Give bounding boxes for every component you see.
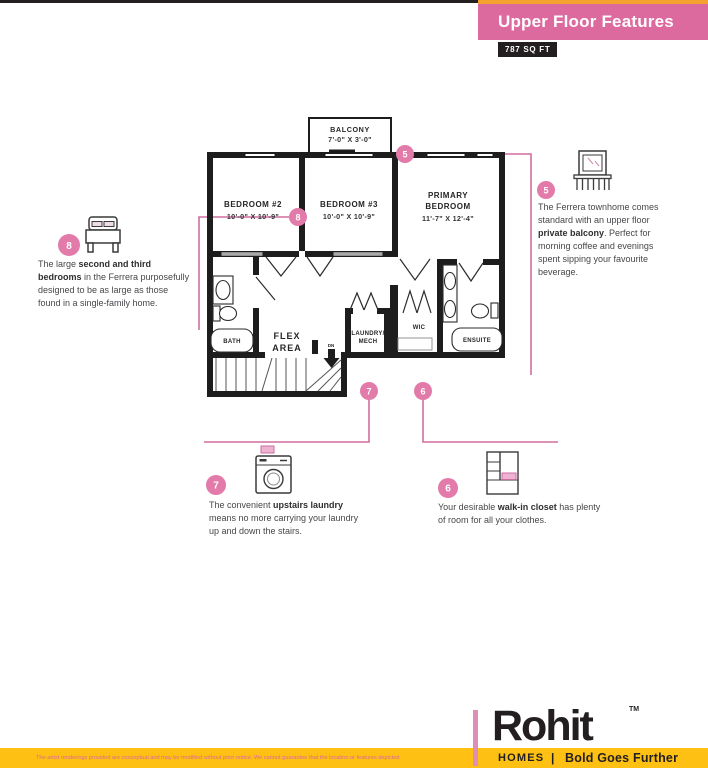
toilet-tank — [491, 303, 498, 318]
ensuite-label: ENSUITE — [463, 338, 491, 344]
plan-callout-markers: 8 5 7 6 — [289, 145, 432, 400]
bedroom2-dims: 10'-0" X 10'-9" — [227, 212, 279, 221]
bedroom3-label: BEDROOM #3 — [320, 200, 378, 209]
svg-text:7: 7 — [366, 387, 371, 397]
closet-drawer-icon — [502, 473, 516, 480]
svg-text:6: 6 — [445, 484, 451, 495]
toilet — [472, 304, 489, 318]
primary-bedroom-label1: PRIMARY — [428, 191, 468, 200]
callout-text-closet: Your desirable walk-in closet has plenty… — [438, 501, 602, 527]
sink — [445, 301, 456, 318]
flex-area-label1: FLEX — [273, 331, 300, 341]
bath-label: BATH — [223, 339, 240, 345]
detergent-box-icon — [261, 446, 274, 453]
callout-text-laundry: The convenient upstairs laundry means no… — [209, 499, 367, 538]
bed-icon — [86, 217, 120, 252]
closet-icon — [487, 452, 518, 494]
wic-label: WIC — [413, 325, 426, 331]
bedroom3-dims: 10'-0" X 10'-9" — [323, 212, 375, 221]
stairs — [216, 358, 341, 391]
svg-text:8: 8 — [295, 213, 300, 223]
bedroom2-label: BEDROOM #2 — [224, 200, 282, 209]
callout-text-balcony: The Ferrera townhome comes standard with… — [538, 201, 666, 279]
flex-area-label2: AREA — [272, 343, 302, 353]
callout-text-bedrooms: The large second and third bedrooms in t… — [38, 258, 191, 310]
laundry-label1: LAUNDRY/ — [351, 331, 384, 337]
floor-plan: DN BALCONY 7'-0" X 3'-0" BEDROOM #2 10'-… — [0, 0, 708, 768]
wic-shelf — [398, 338, 432, 350]
primary-bedroom-dims: 11'-7" X 12'-4" — [422, 214, 474, 223]
brand-division: HOMES — [498, 752, 544, 764]
svg-text:5: 5 — [402, 150, 407, 160]
balcony-slider-door — [329, 150, 355, 153]
laundry-label2: MECH — [359, 339, 378, 345]
balcony-dims: 7'-0" X 3'-0" — [328, 135, 372, 144]
brand-logo: Rohit — [492, 702, 592, 751]
disclaimer-text: The artist renderings provided are conce… — [36, 754, 456, 760]
brand-divider: | — [551, 751, 554, 765]
plan-walls — [207, 152, 505, 397]
svg-text:5: 5 — [543, 186, 548, 196]
sink — [216, 281, 230, 300]
washing-machine-icon — [256, 446, 291, 493]
brand-tagline: Bold Goes Further — [565, 751, 678, 765]
svg-text:7: 7 — [213, 481, 219, 492]
svg-text:8: 8 — [66, 241, 72, 252]
balcony-icon — [574, 151, 611, 190]
svg-text:6: 6 — [420, 387, 425, 397]
sink — [445, 273, 456, 290]
balcony-label: BALCONY — [330, 125, 370, 134]
stairs-dn-label: DN — [328, 343, 335, 348]
logo-accent-bar — [473, 710, 478, 766]
primary-bedroom-label2: BEDROOM — [425, 202, 470, 211]
stairs-down-arrow — [324, 349, 340, 368]
toilet — [220, 307, 237, 321]
trademark-symbol: TM — [629, 706, 639, 713]
